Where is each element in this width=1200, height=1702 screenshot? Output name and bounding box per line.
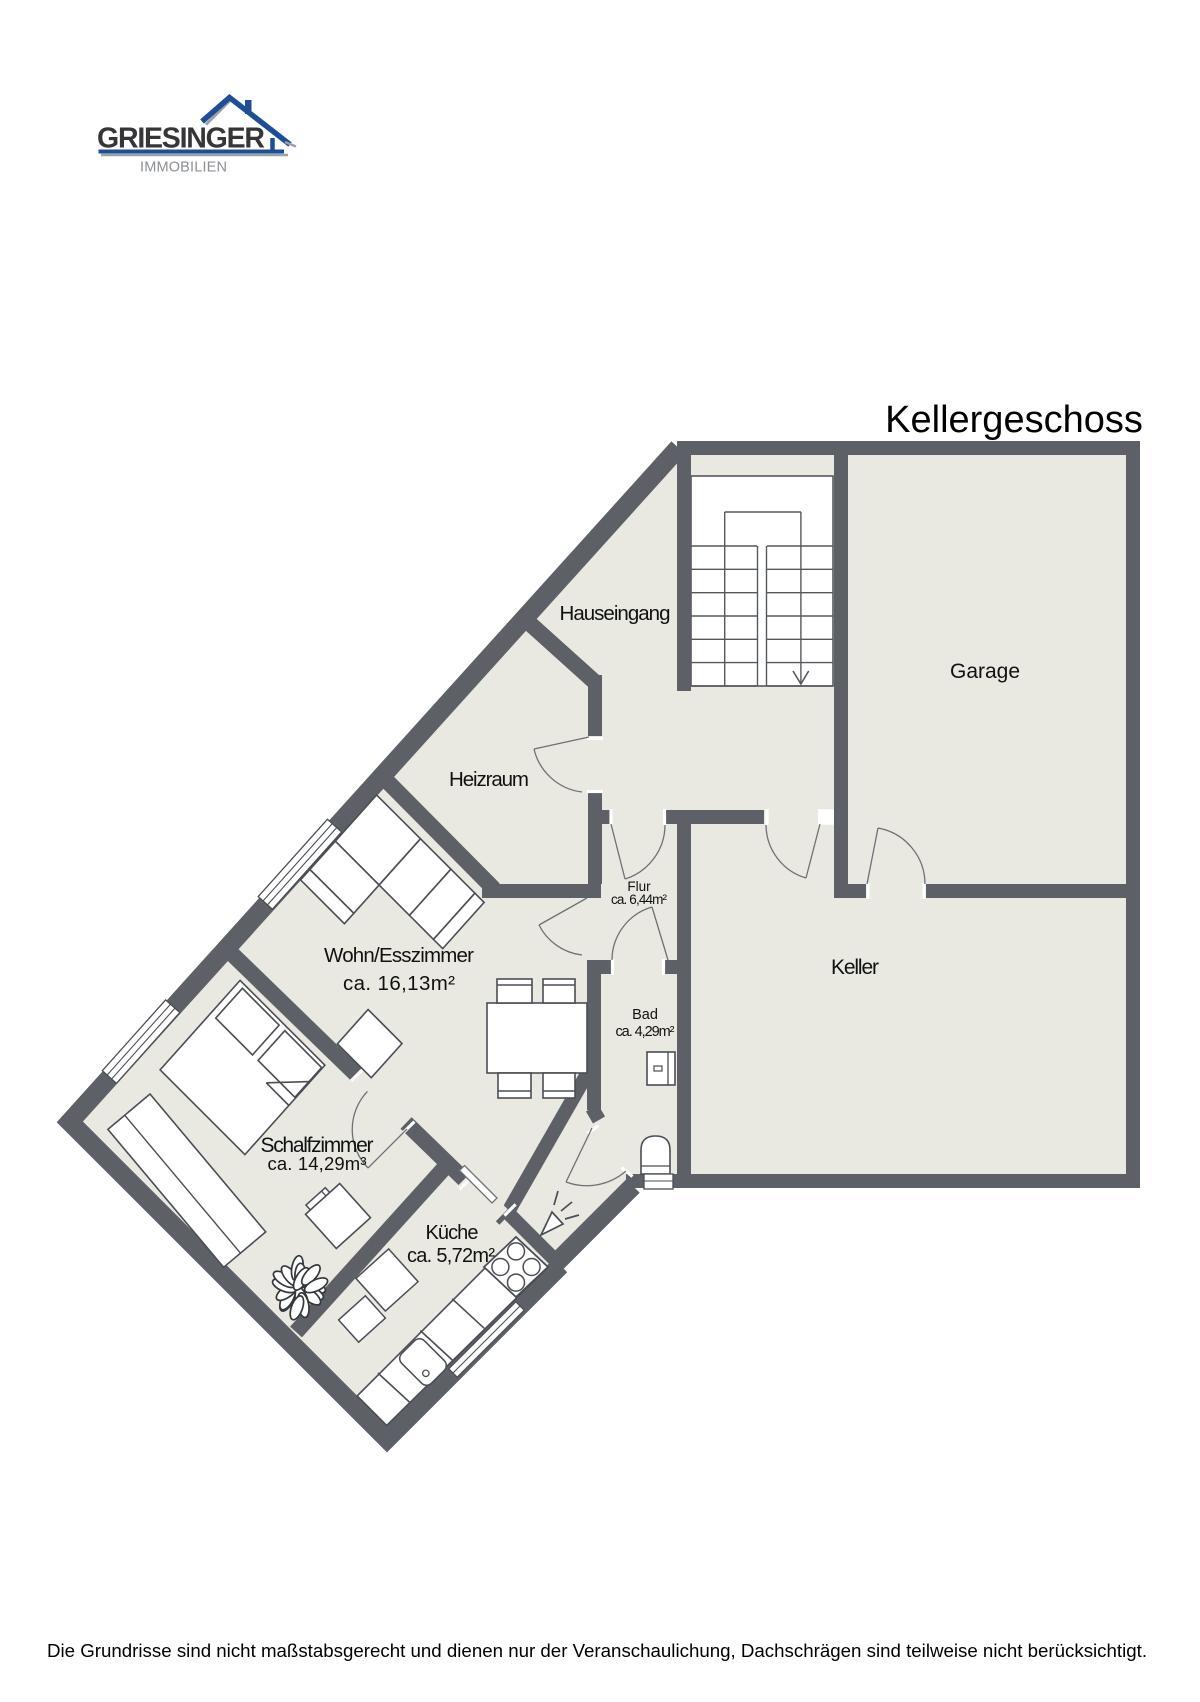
svg-text:ca. 5,72m²: ca. 5,72m²	[407, 1245, 495, 1267]
svg-text:Heizraum: Heizraum	[449, 768, 529, 791]
svg-text:Garage: Garage	[950, 660, 1020, 683]
svg-text:IMMOBILIEN: IMMOBILIEN	[140, 160, 227, 176]
svg-text:GRIESINGER: GRIESINGER	[97, 123, 265, 155]
svg-text:Hauseingang: Hauseingang	[560, 602, 671, 625]
svg-text:Keller: Keller	[831, 956, 879, 979]
svg-text:ca. 14,29m³: ca. 14,29m³	[268, 1153, 367, 1174]
svg-text:ca. 6,44m²: ca. 6,44m²	[611, 892, 668, 907]
svg-text:Bad: Bad	[632, 1007, 658, 1023]
svg-text:Wohn/Esszimmer: Wohn/Esszimmer	[324, 944, 474, 967]
svg-text:ca. 4,29m²: ca. 4,29m²	[616, 1024, 675, 1040]
svg-text:Die Grundrisse sind nicht maßs: Die Grundrisse sind nicht maßstabsgerech…	[47, 1640, 1147, 1661]
svg-text:Kellergeschoss: Kellergeschoss	[885, 399, 1143, 441]
svg-text:ca. 16,13m²: ca. 16,13m²	[343, 972, 455, 995]
svg-text:Küche: Küche	[426, 1222, 479, 1244]
